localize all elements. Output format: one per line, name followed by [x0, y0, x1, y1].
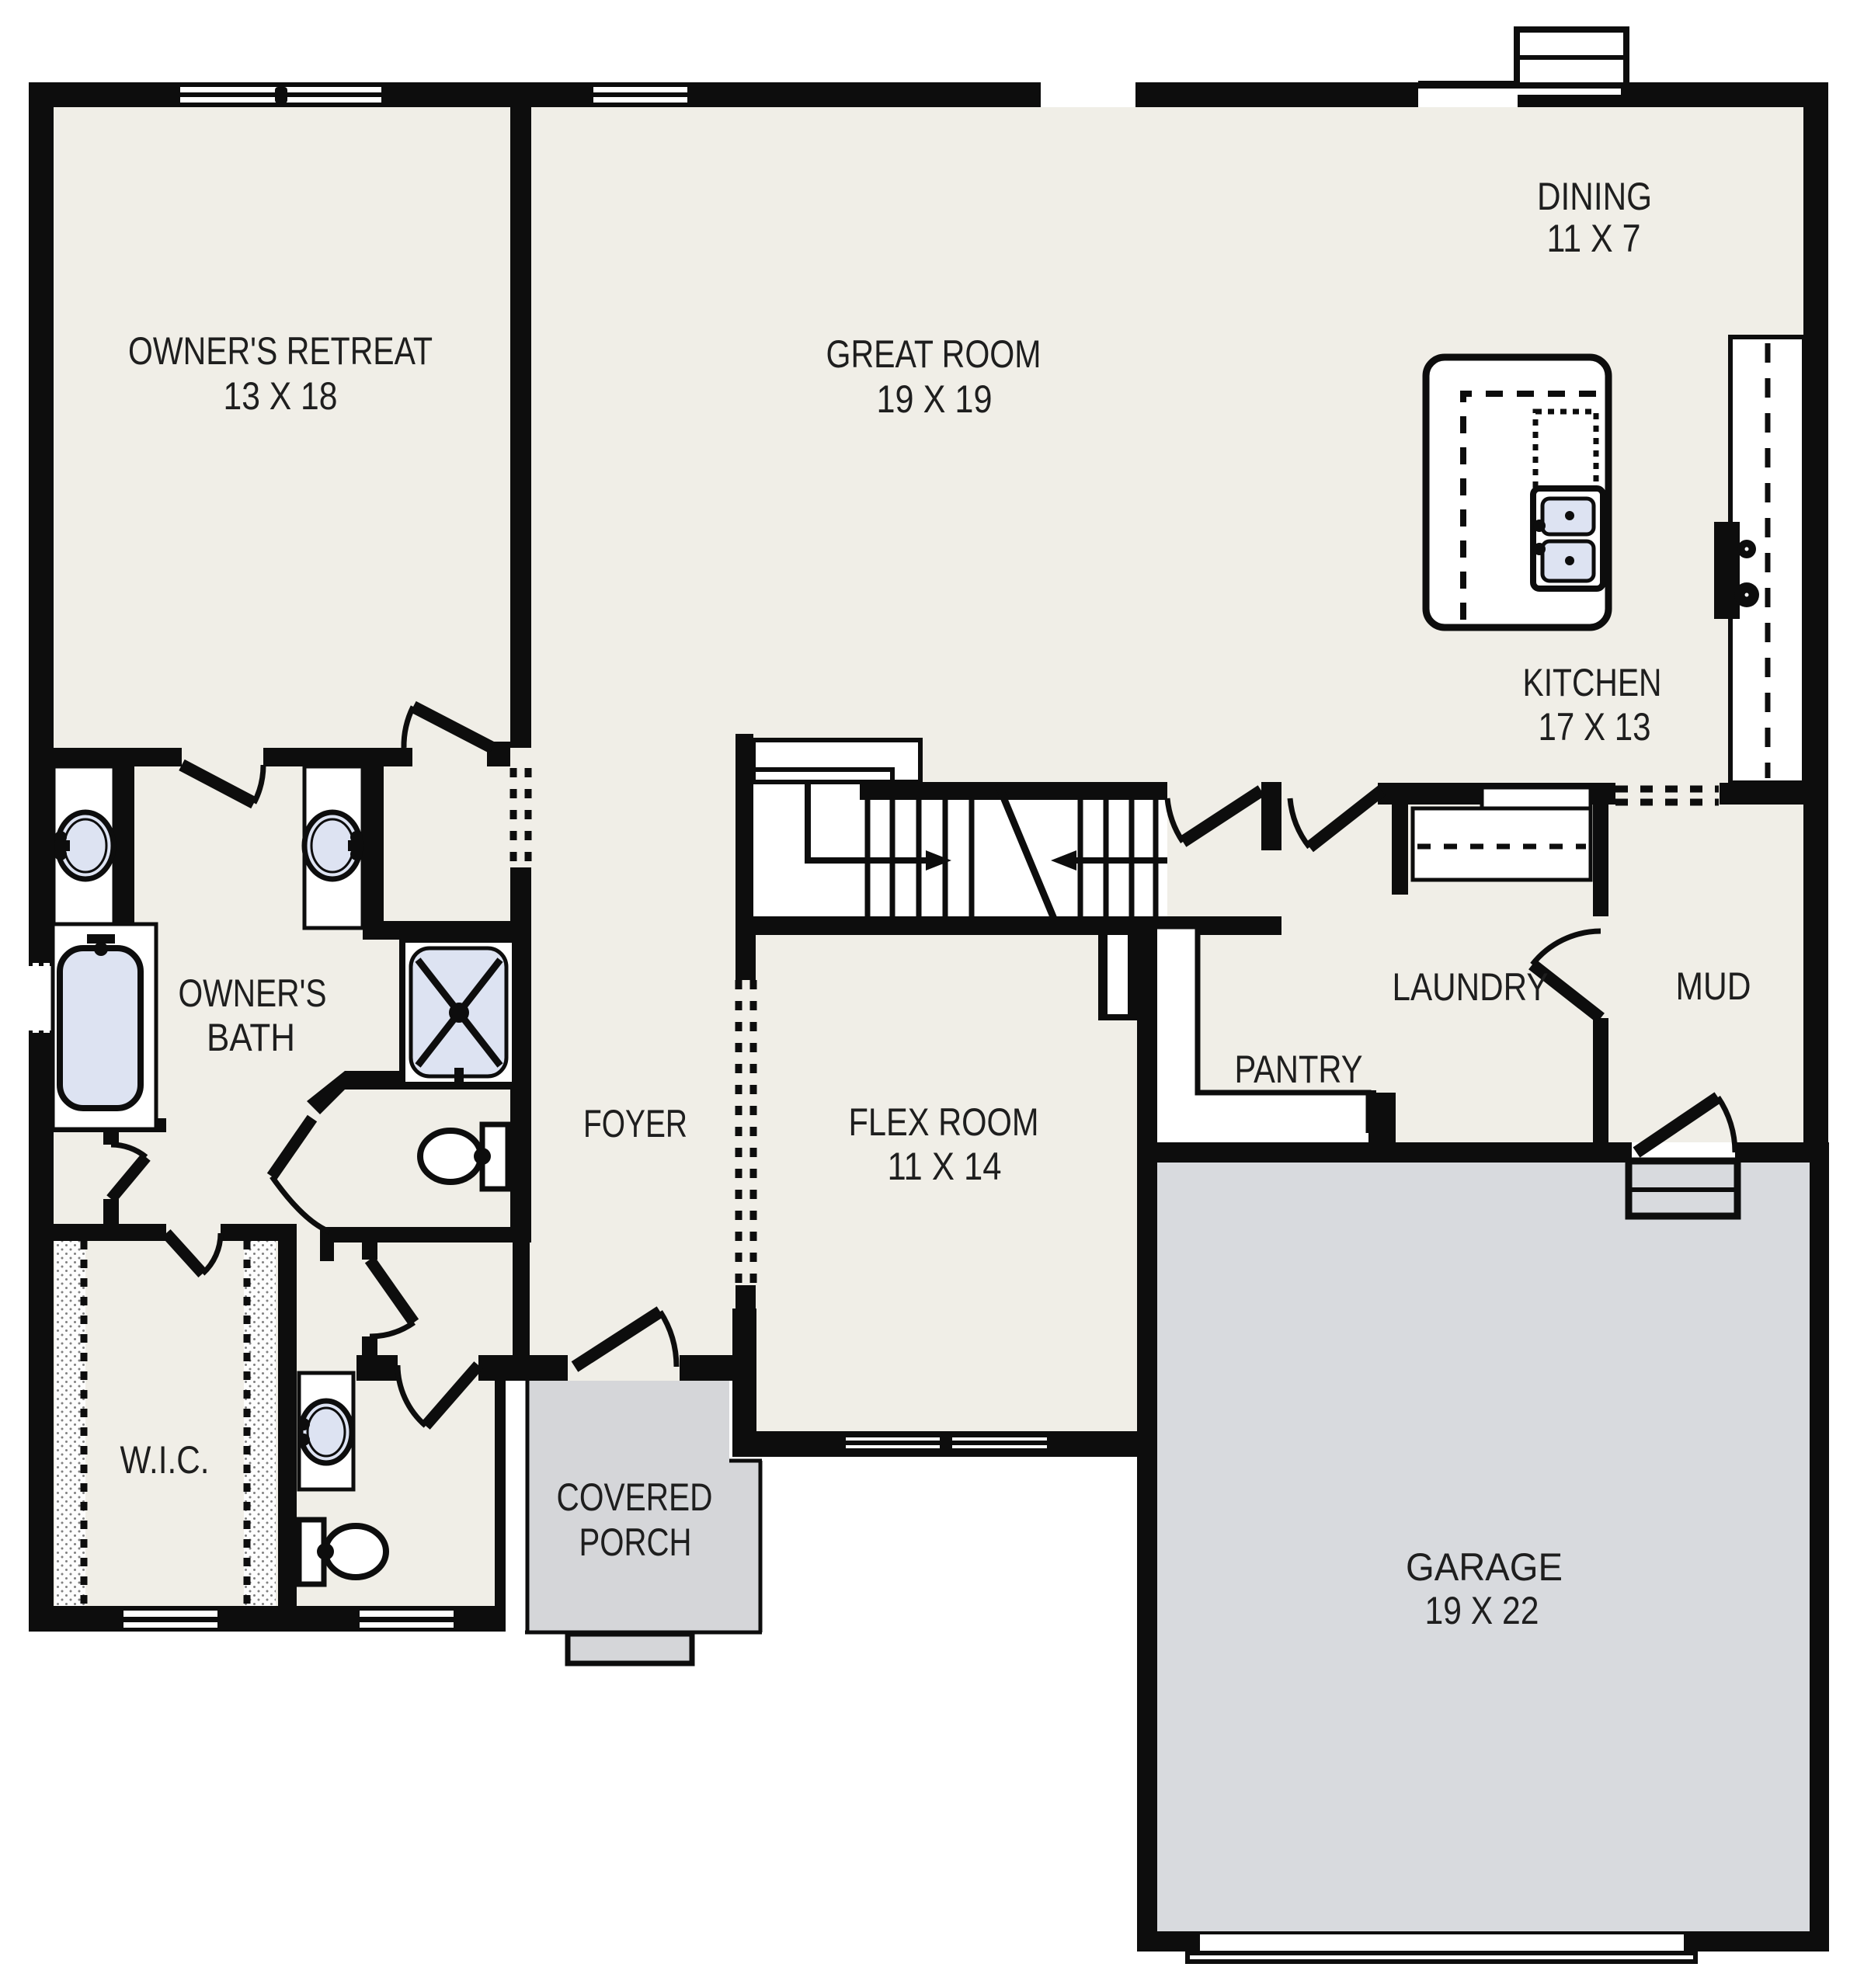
svg-text:OWNER'S RETREAT: OWNER'S RETREAT	[128, 329, 433, 373]
svg-text:OWNER'S: OWNER'S	[179, 971, 327, 1015]
svg-text:FLEX ROOM: FLEX ROOM	[849, 1100, 1039, 1144]
svg-text:LAUNDRY: LAUNDRY	[1393, 965, 1549, 1009]
svg-text:11 X 14: 11 X 14	[888, 1145, 1002, 1188]
svg-text:FOYER: FOYER	[583, 1102, 687, 1145]
svg-text:GREAT ROOM: GREAT ROOM	[826, 332, 1042, 376]
svg-text:17 X 13: 17 X 13	[1539, 705, 1651, 749]
svg-text:DINING: DINING	[1537, 175, 1652, 218]
svg-text:11 X 7: 11 X 7	[1547, 217, 1641, 260]
svg-text:PANTRY: PANTRY	[1235, 1048, 1363, 1091]
svg-text:BATH: BATH	[207, 1016, 295, 1059]
svg-text:19 X 19: 19 X 19	[877, 377, 993, 421]
svg-text:KITCHEN: KITCHEN	[1523, 661, 1662, 704]
svg-text:13 X 18: 13 X 18	[224, 374, 338, 418]
svg-text:19 X 22: 19 X 22	[1425, 1589, 1539, 1632]
svg-text:COVERED: COVERED	[557, 1475, 713, 1519]
svg-text:MUD: MUD	[1676, 964, 1751, 1008]
svg-text:PORCH: PORCH	[579, 1521, 692, 1564]
svg-text:GARAGE: GARAGE	[1406, 1545, 1563, 1589]
svg-text:W.I.C.: W.I.C.	[120, 1438, 210, 1482]
